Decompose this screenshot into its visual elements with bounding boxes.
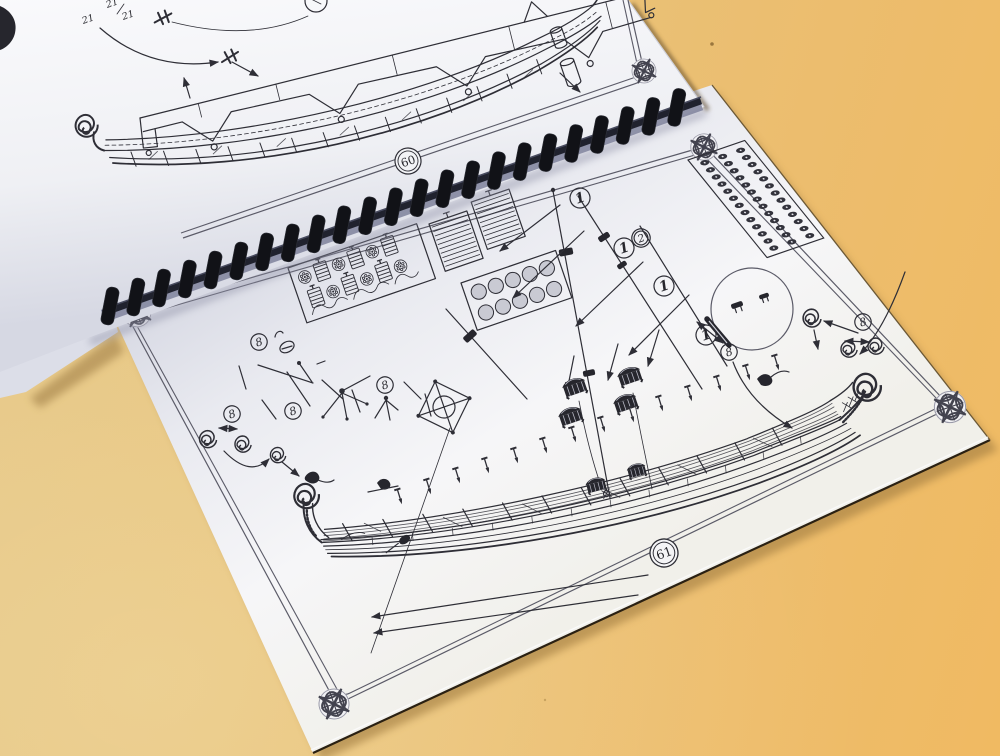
table-speck	[710, 42, 714, 46]
photo-of-instruction-booklet: 2	[0, 0, 1000, 756]
table-speck	[544, 699, 546, 701]
booklet-photo: 2	[0, 0, 1000, 756]
